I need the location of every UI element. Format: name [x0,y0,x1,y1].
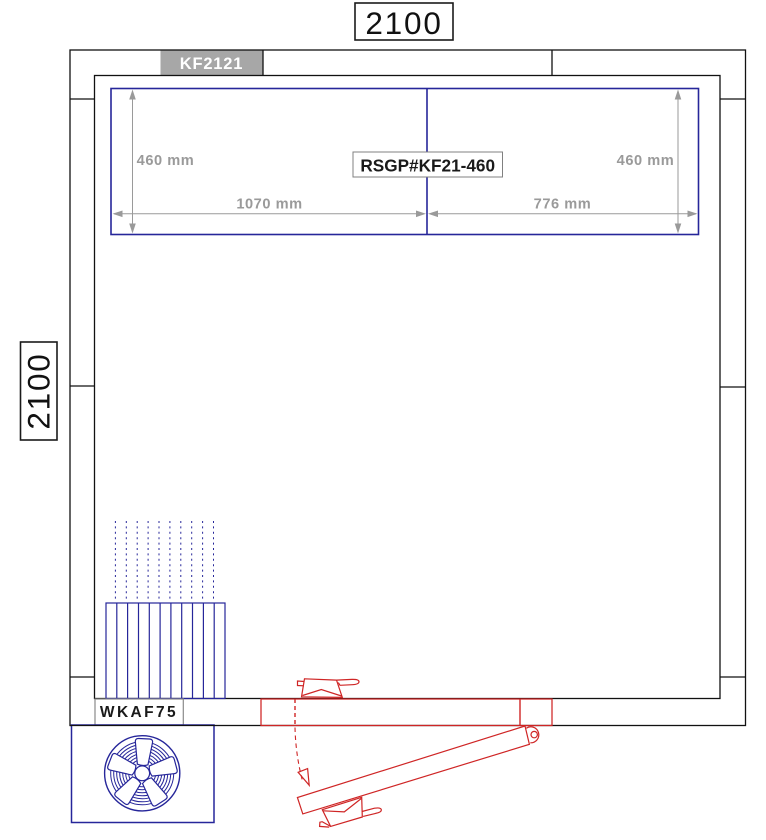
svg-text:460 mm: 460 mm [137,153,195,169]
svg-text:460 mm: 460 mm [617,153,675,169]
svg-text:2100: 2100 [365,5,442,41]
svg-text:KF2121: KF2121 [180,55,244,73]
svg-text:RSGP#KF21-460: RSGP#KF21-460 [360,156,495,176]
svg-text:WKAF75: WKAF75 [100,704,178,721]
svg-text:2100: 2100 [21,352,57,429]
svg-text:1070 mm: 1070 mm [236,197,302,213]
svg-text:776 mm: 776 mm [534,197,592,213]
